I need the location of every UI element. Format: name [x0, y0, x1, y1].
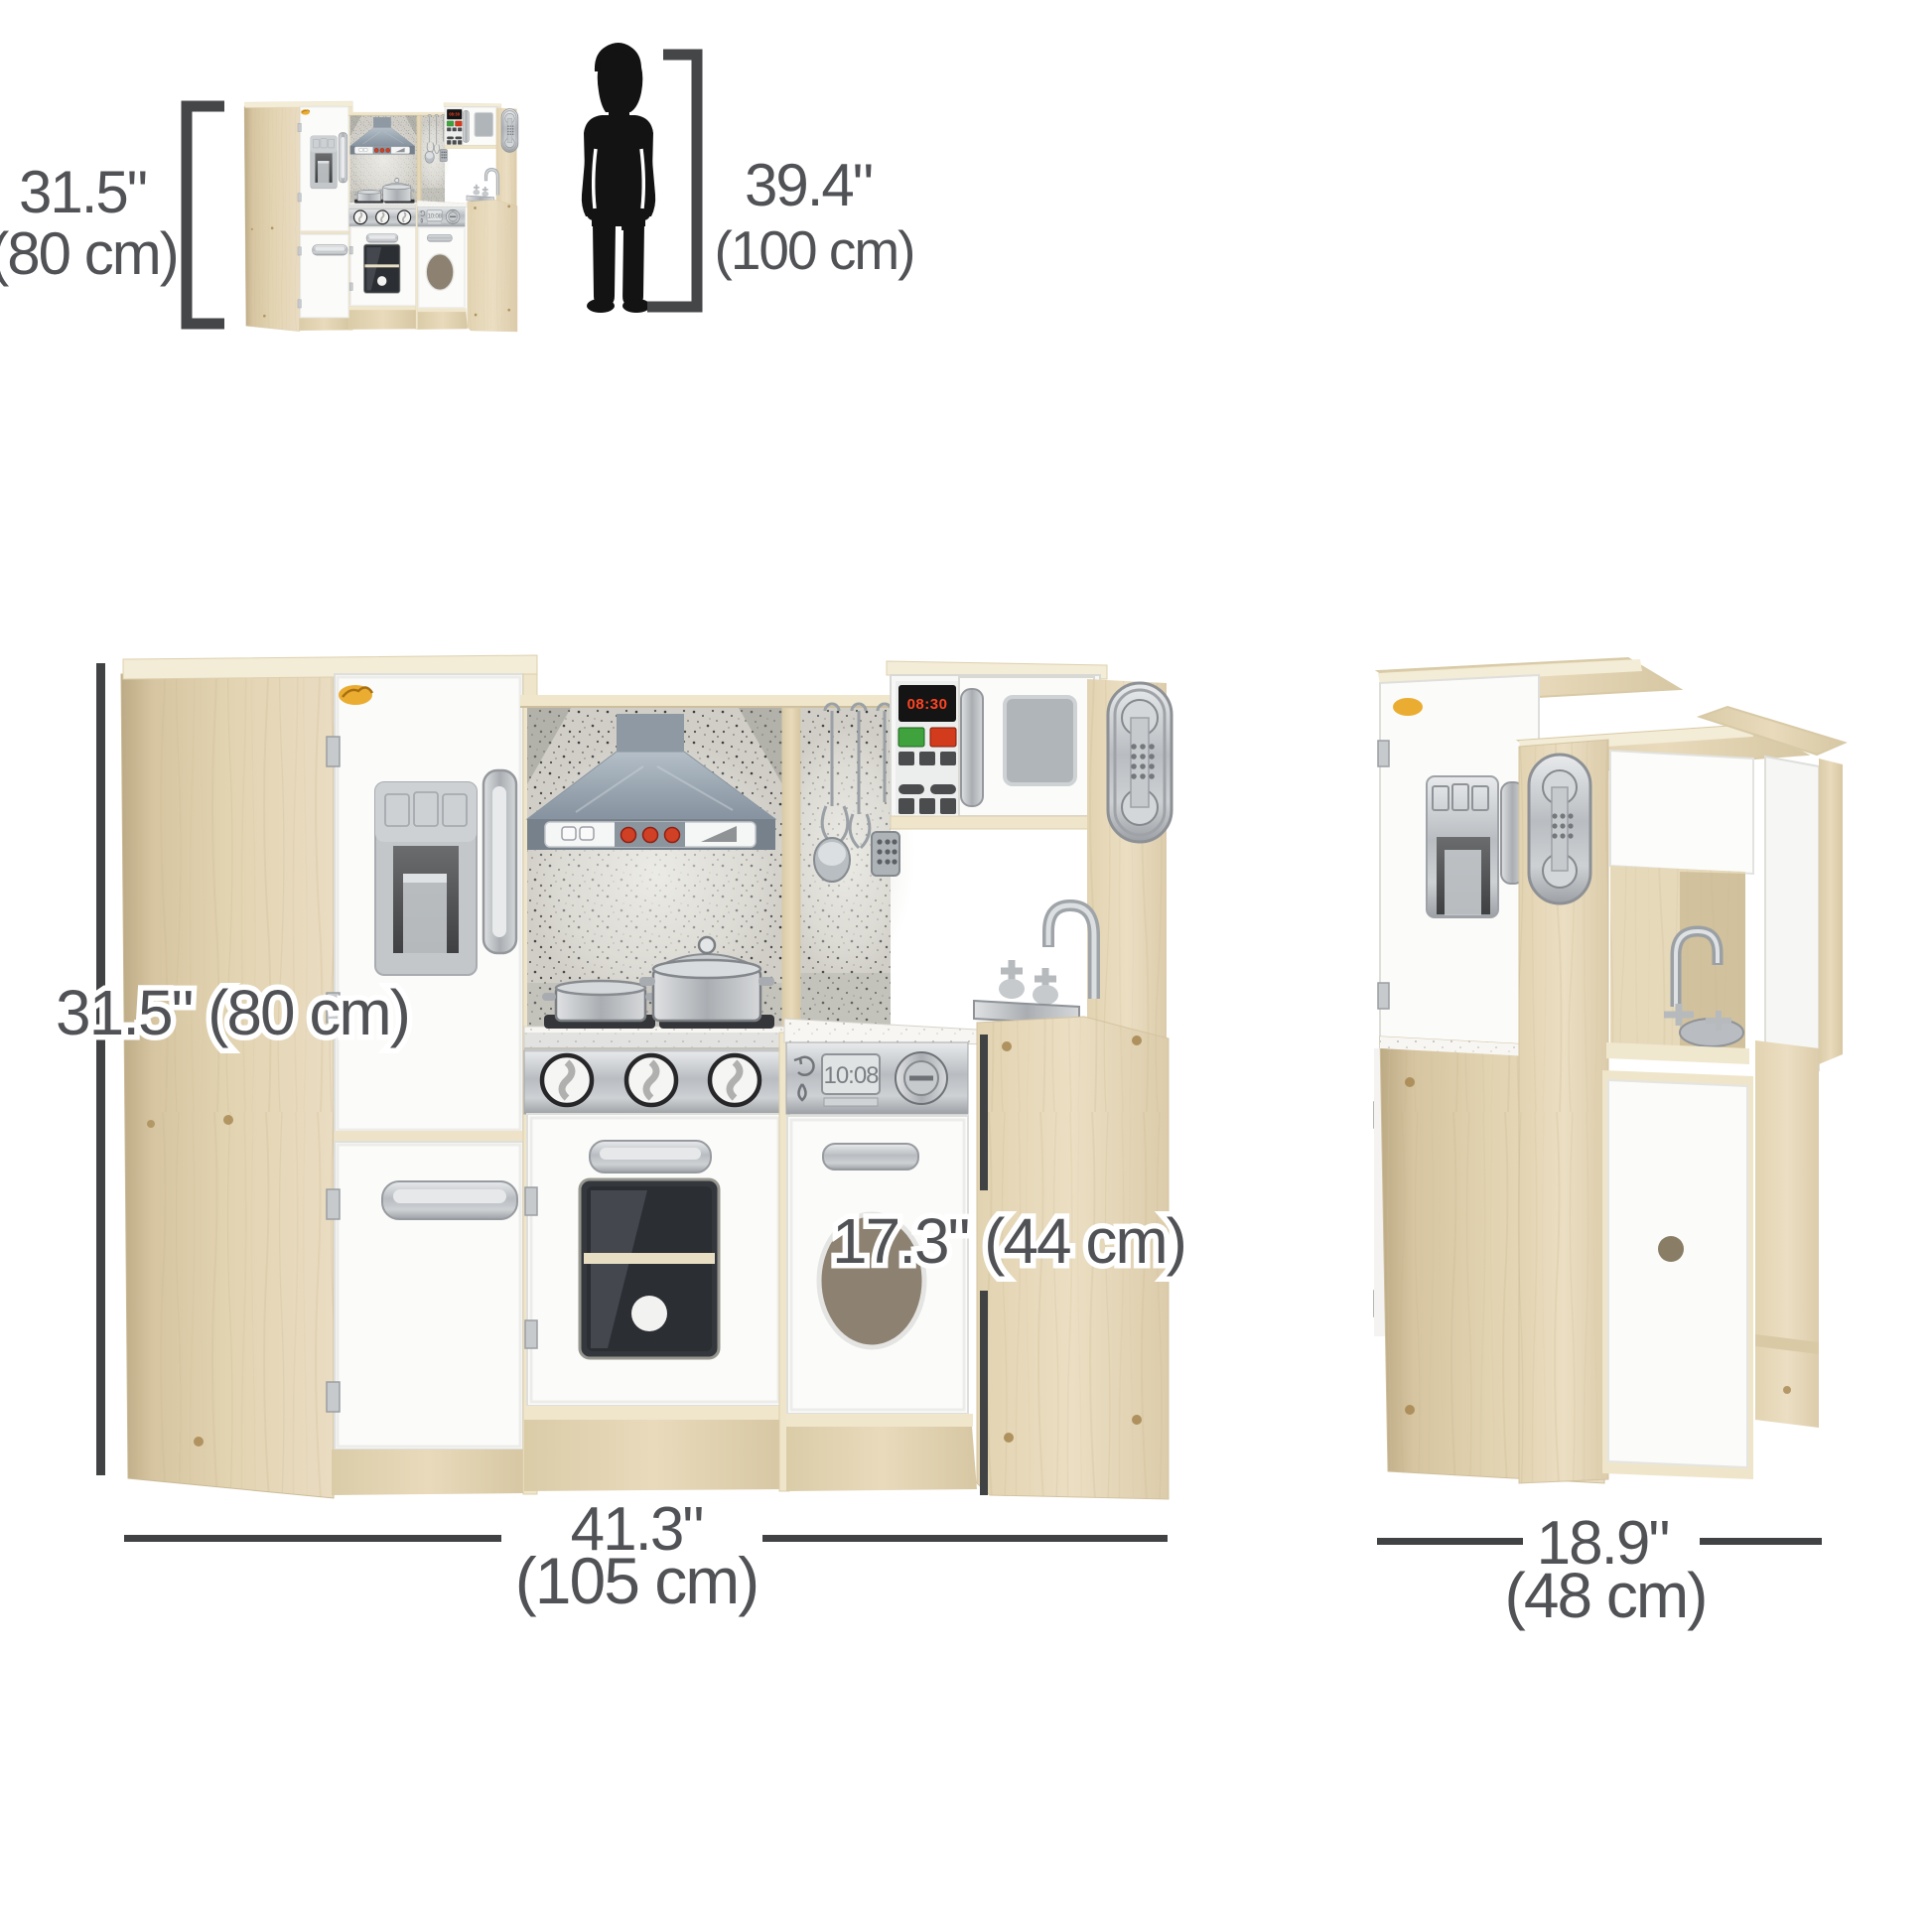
svg-text:31.5": 31.5"	[19, 159, 146, 225]
svg-text:(48 cm): (48 cm)	[1505, 1560, 1707, 1631]
svg-text:(80 cm): (80 cm)	[0, 220, 178, 287]
svg-text:17.3" (44 cm): 17.3" (44 cm)	[832, 1205, 1185, 1277]
svg-text:08:30: 08:30	[907, 696, 948, 713]
svg-text:31.5" (80 cm): 31.5" (80 cm)	[56, 977, 409, 1048]
svg-text:(105 cm): (105 cm)	[515, 1544, 758, 1617]
svg-text:39.4": 39.4"	[745, 152, 872, 218]
svg-text:10:08: 10:08	[823, 1062, 879, 1089]
svg-text:(100 cm): (100 cm)	[715, 219, 914, 281]
